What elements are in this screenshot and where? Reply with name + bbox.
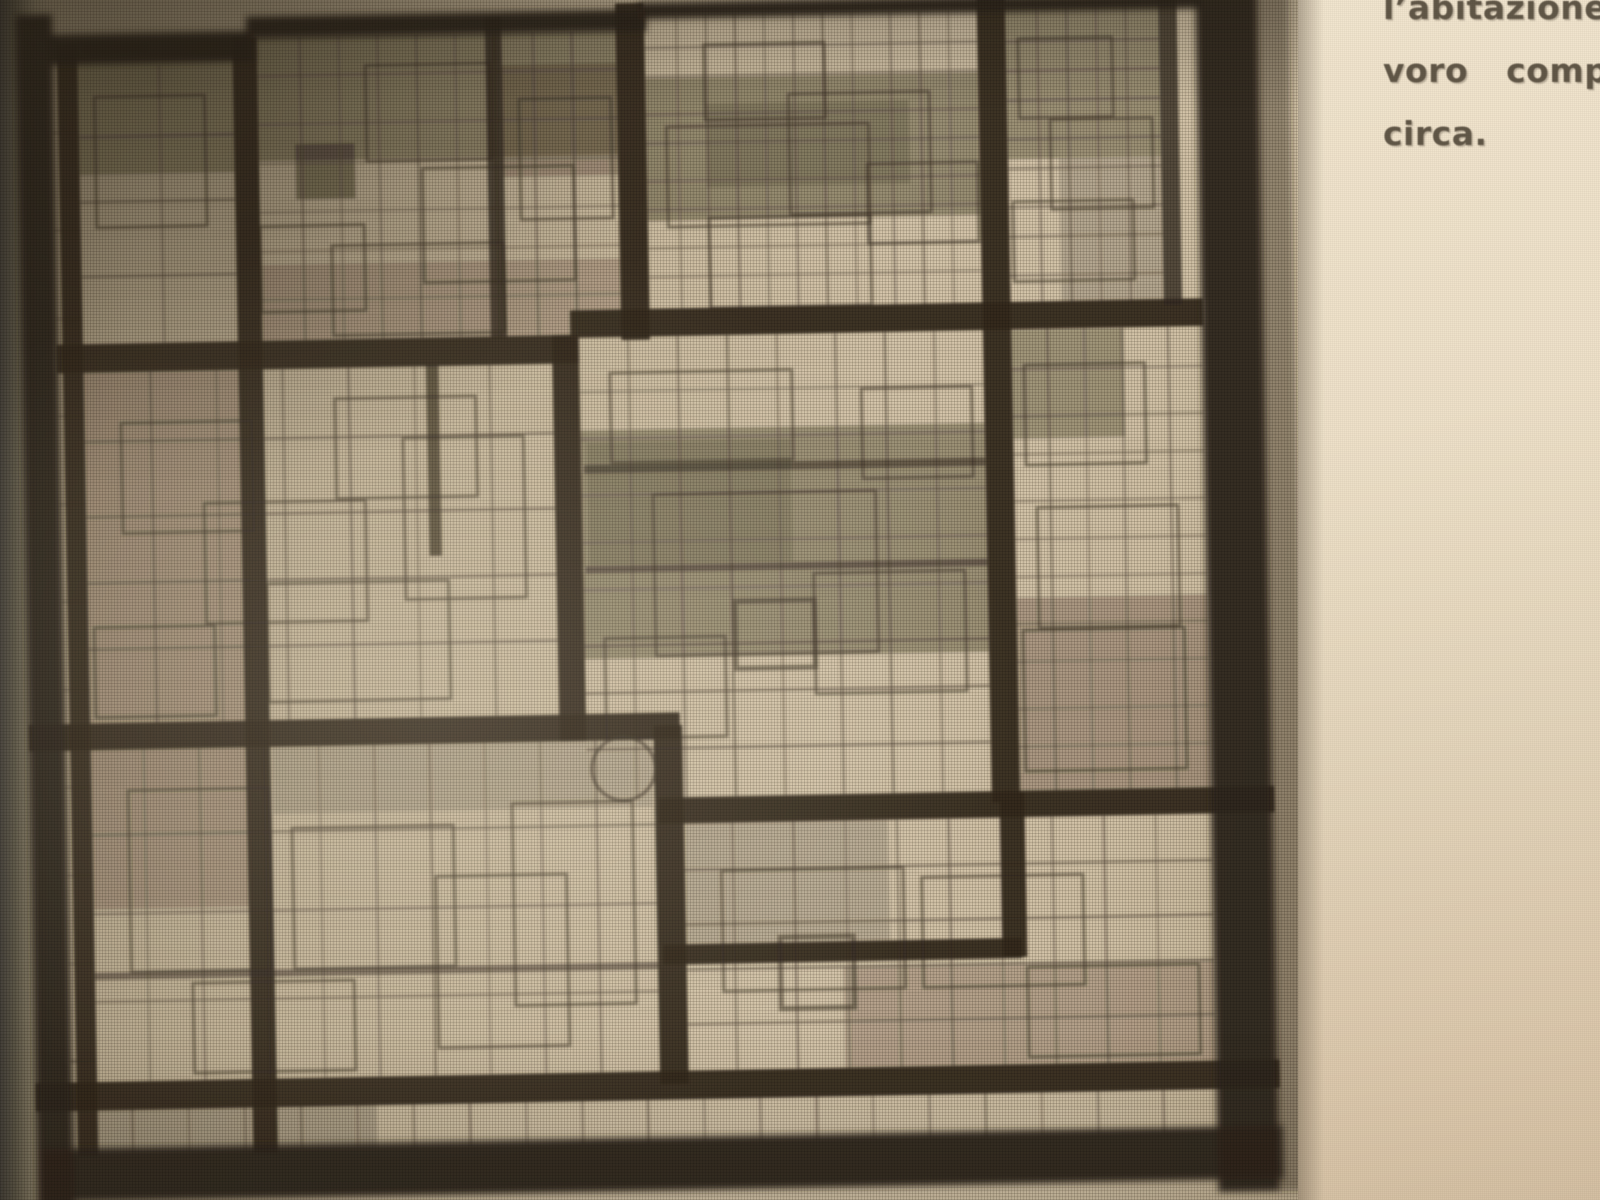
photo-of-book-page: l’abitazione voro comp circa. (0, 0, 1600, 1200)
right-page-margin: l’abitazione voro comp circa. (1298, 0, 1600, 1200)
caption-line-1: l’abitazione (1383, 0, 1600, 39)
caption-line-3: circa. (1383, 102, 1600, 165)
caption-text-block: l’abitazione voro comp circa. (1383, 0, 1600, 165)
caption-line-2: voro comp (1383, 39, 1600, 102)
